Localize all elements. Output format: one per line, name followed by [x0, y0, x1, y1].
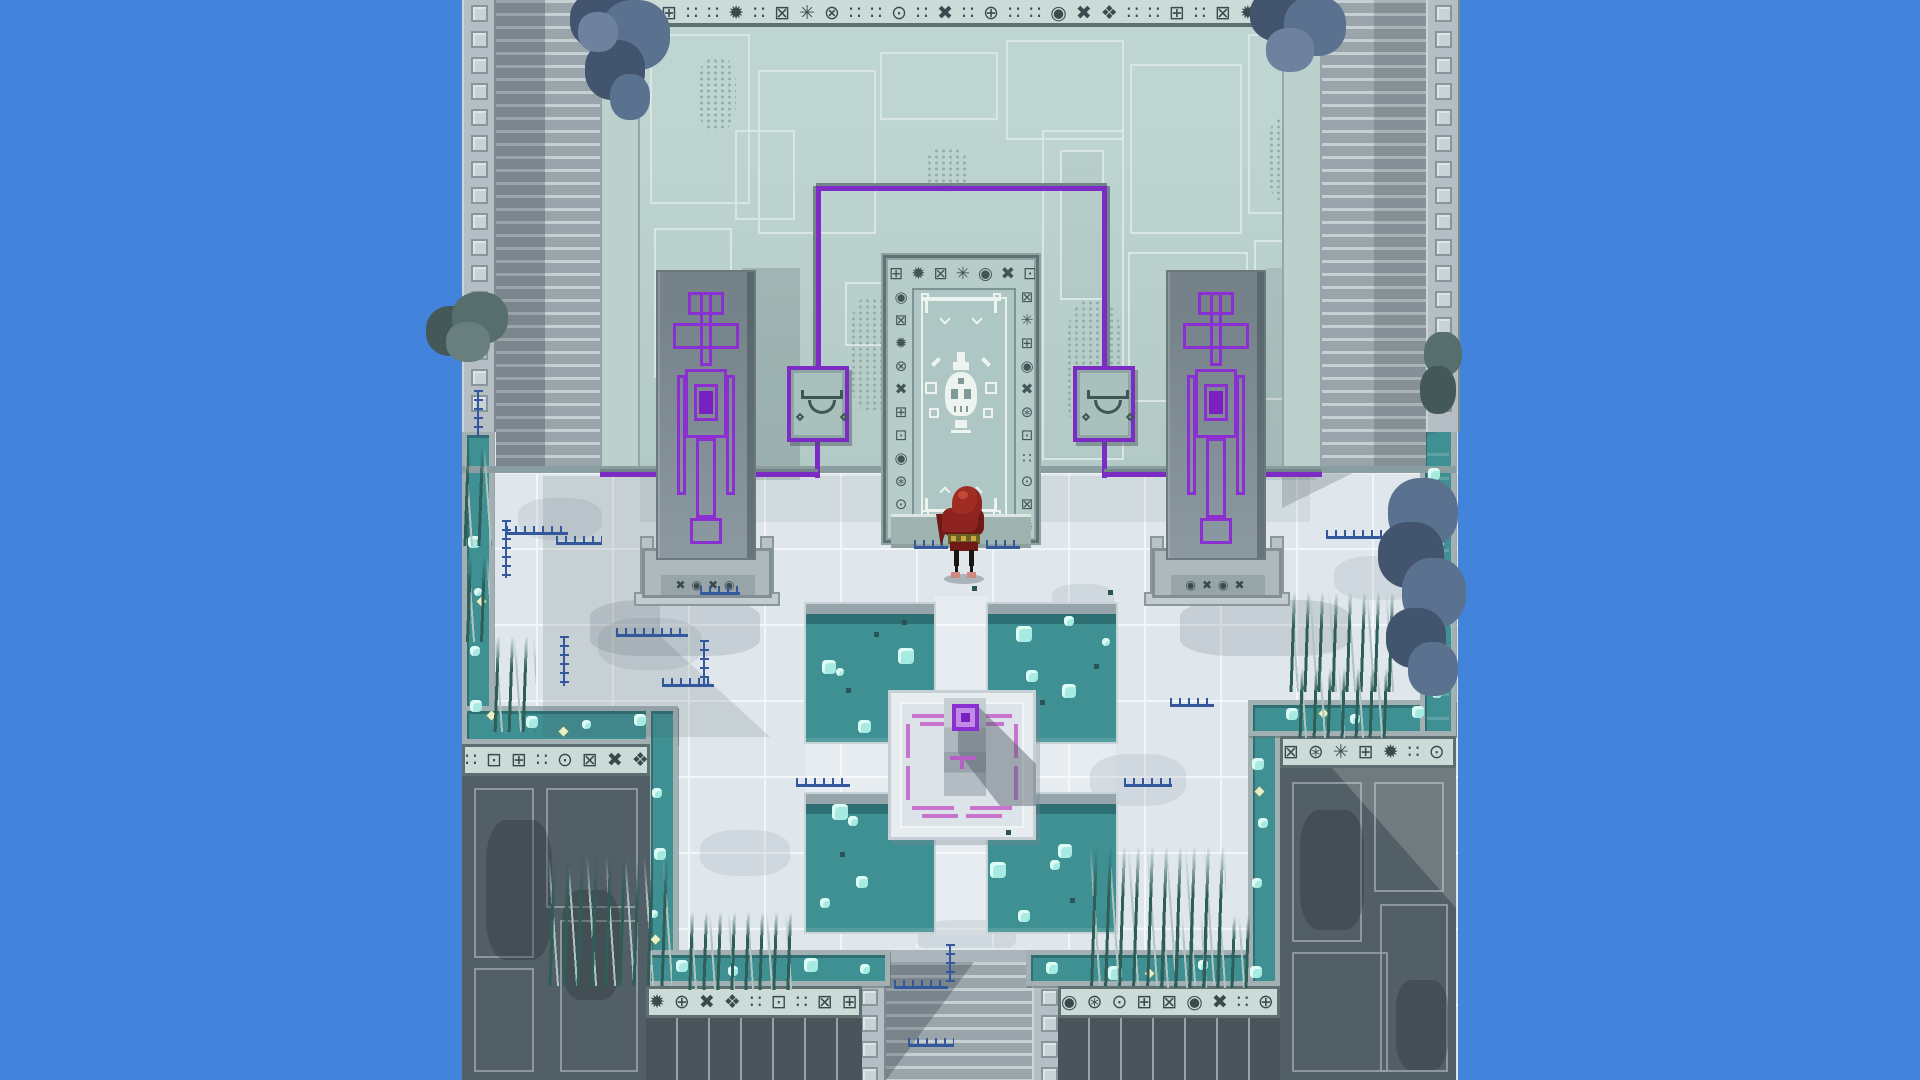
- skull-brow-dot: [958, 378, 964, 384]
- psq: [1435, 291, 1452, 308]
- psq: [1435, 265, 1452, 282]
- psq: [471, 395, 488, 412]
- psq: [861, 989, 878, 1006]
- bracket-chevron: [939, 313, 950, 324]
- psq: [861, 1015, 878, 1032]
- psq: [471, 369, 488, 386]
- bracket-post: [925, 301, 928, 313]
- hood: [952, 486, 982, 520]
- skull-crown: [953, 362, 969, 370]
- south-wall-rim: [886, 948, 1032, 962]
- base-glyph-strip: ◉✖◉✖: [1171, 575, 1265, 595]
- bracket-post: [994, 301, 997, 313]
- frieze-block-b-right: ◉⊛⊙⊞⊠◉✖∷⊕◉: [1058, 986, 1280, 1018]
- south-wall: [886, 962, 1032, 1080]
- foot-right: [967, 572, 976, 578]
- door-glyph-right: ⊠✳⊞◉✖⊛⊡∷⊙⊠✹⊕: [1015, 288, 1039, 540]
- psq: [471, 187, 488, 204]
- banner-line: [1200, 518, 1233, 544]
- skull-foot-mark: [955, 420, 967, 428]
- eye-plaque-left: [787, 366, 849, 442]
- eye-dot: [1126, 413, 1134, 421]
- eye-tick: [1126, 390, 1129, 399]
- eye-plaque-right: [1073, 366, 1135, 442]
- psq: [1041, 1041, 1058, 1058]
- banner-line: [1206, 438, 1225, 518]
- psq: [1435, 57, 1452, 74]
- banner-line: [673, 323, 738, 349]
- eye-tick: [840, 390, 843, 399]
- frieze-block-a-left: ∷⊡⊞∷⊙⊠✖❖⊕: [462, 744, 650, 776]
- banner-monolith-left: [656, 270, 756, 560]
- frieze-block-b-left: ✹⊕✖❖∷⊡∷⊠⊞⊙: [646, 986, 862, 1018]
- platform-ornament-t: [960, 756, 964, 769]
- psq: [1435, 239, 1452, 256]
- psq: [1435, 83, 1452, 100]
- banner-line: [1183, 323, 1248, 349]
- foliage: [610, 74, 650, 120]
- game-viewport[interactable]: ∷⊡⊞∷⊙⊠✖❖⊕ ⊠⊛✳⊞✹∷⊙✖ ✹⊕✖❖∷⊡∷⊠⊞⊙ ◉⊛⊙⊞⊠◉✖∷⊕◉…: [0, 0, 1920, 1080]
- psq: [1435, 135, 1452, 152]
- psq: [861, 1041, 878, 1058]
- psq: [471, 83, 488, 100]
- door-bracket-top: [925, 298, 997, 324]
- banner-line: [726, 375, 735, 495]
- foliage: [1266, 28, 1314, 72]
- terrace-block-right-outer: [1280, 768, 1456, 1080]
- tree-top-right: [1244, 0, 1354, 84]
- psq: [861, 1067, 878, 1080]
- psq: [1041, 989, 1058, 1006]
- bracket-knob: [921, 293, 929, 301]
- skull-foot-mark: [951, 430, 971, 433]
- skull-mouth: [960, 406, 962, 412]
- bush-right-large: [1378, 478, 1466, 698]
- eye-arc: [1094, 400, 1122, 414]
- eye-tick: [1087, 390, 1090, 399]
- south-face-right: [1058, 1018, 1280, 1080]
- moat-right-inner: [1248, 700, 1280, 986]
- banner-line: [696, 438, 715, 518]
- moat-bottom-right: [1026, 950, 1280, 986]
- skull-curl: [929, 408, 939, 418]
- player-character: [936, 484, 988, 584]
- banner-line: [1187, 375, 1196, 495]
- skull-emblem: [925, 356, 997, 442]
- eye-dot: [796, 413, 804, 421]
- platform-ornament: [912, 806, 954, 810]
- eye-dot: [840, 413, 848, 421]
- psq: [471, 135, 488, 152]
- north-pillar-left: [462, 0, 496, 432]
- moat-left-inner: [646, 706, 678, 986]
- bracket-post: [994, 498, 997, 510]
- hood-highlight: [958, 491, 968, 499]
- south-face-left: [646, 1018, 862, 1080]
- ledge-shadow: [496, 0, 545, 472]
- banner-line: [690, 518, 723, 544]
- platform-ornament: [966, 814, 1002, 818]
- skull-ray: [931, 357, 941, 367]
- banner-core: [1209, 391, 1222, 414]
- skull-eye: [951, 389, 958, 399]
- eye-tick: [801, 390, 804, 399]
- terrace-block-left-outer: [462, 776, 650, 1080]
- eye-dot: [1082, 413, 1090, 421]
- skull-curl: [985, 382, 997, 394]
- psq: [471, 109, 488, 126]
- psq: [471, 31, 488, 48]
- ledge-shadow: [1374, 0, 1426, 472]
- bush-left: [426, 292, 510, 366]
- frieze-block-a-right: ⊠⊛✳⊞✹∷⊙✖: [1280, 736, 1456, 768]
- bracket-knob: [993, 293, 1001, 301]
- door-glyph-top: ⊞✹⊠✳◉✖⊡: [889, 260, 1035, 288]
- psq: [1041, 1067, 1058, 1080]
- purple-conduit-right: [1102, 186, 1107, 370]
- moat-bottom-left: [646, 950, 890, 986]
- psq: [471, 265, 488, 282]
- skull-mouth: [966, 406, 968, 412]
- foliage: [1408, 642, 1458, 696]
- skull-ray: [981, 357, 991, 367]
- purple-conduit-top: [816, 186, 1107, 191]
- platform-ornament: [970, 806, 1012, 810]
- psq: [1435, 31, 1452, 48]
- platform-ornament: [906, 766, 910, 800]
- psq: [471, 213, 488, 230]
- banner-line: [677, 375, 686, 495]
- skull-curl: [983, 408, 993, 418]
- bracket-chevron: [971, 313, 982, 324]
- tree-top-left: [560, 0, 680, 130]
- bush-right-small: [1420, 332, 1464, 418]
- character-shadow: [944, 574, 984, 584]
- psq: [1435, 161, 1452, 178]
- psq: [471, 5, 488, 22]
- foot-left: [951, 572, 960, 578]
- psq: [471, 239, 488, 256]
- skull-icon: [945, 372, 977, 416]
- foliage: [1420, 366, 1456, 414]
- psq: [1435, 109, 1452, 126]
- bracket-post: [925, 498, 928, 510]
- foliage: [446, 322, 490, 362]
- base-glyph-strip: ✖◉✖◉: [661, 575, 755, 595]
- eye-icon: [1087, 396, 1129, 399]
- psq: [1435, 187, 1452, 204]
- door-glyph-left: ◉⊠✹⊗✖⊞⊡◉⊛⊙⊞⊠: [889, 288, 913, 540]
- banner-core: [699, 391, 712, 414]
- eye-arc: [808, 400, 836, 414]
- top-frieze: ∷⊞∷∷✹∷⊠✳⊗∷∷⊙∷✖∷⊕∷∷◉✖❖∷∷⊞∷⊠✹∷⊡⊠: [640, 0, 1310, 27]
- psq: [1435, 213, 1452, 230]
- psq: [1041, 1015, 1058, 1032]
- skull-mouth: [954, 406, 956, 412]
- banner-line: [1236, 375, 1245, 495]
- skull-eye: [964, 389, 971, 399]
- psq: [471, 161, 488, 178]
- eye-icon: [801, 396, 843, 399]
- pedestal-sigil-core: [961, 713, 970, 722]
- psq: [1435, 5, 1452, 22]
- platform-ornament: [906, 724, 910, 758]
- purple-conduit-left: [816, 186, 821, 370]
- moat-left-vertical: [462, 430, 494, 744]
- platform-ornament: [922, 814, 958, 818]
- banner-monolith-right: [1166, 270, 1266, 560]
- skull-ray: [957, 352, 965, 362]
- foliage: [578, 12, 618, 52]
- psq: [471, 57, 488, 74]
- skull-curl: [925, 382, 937, 394]
